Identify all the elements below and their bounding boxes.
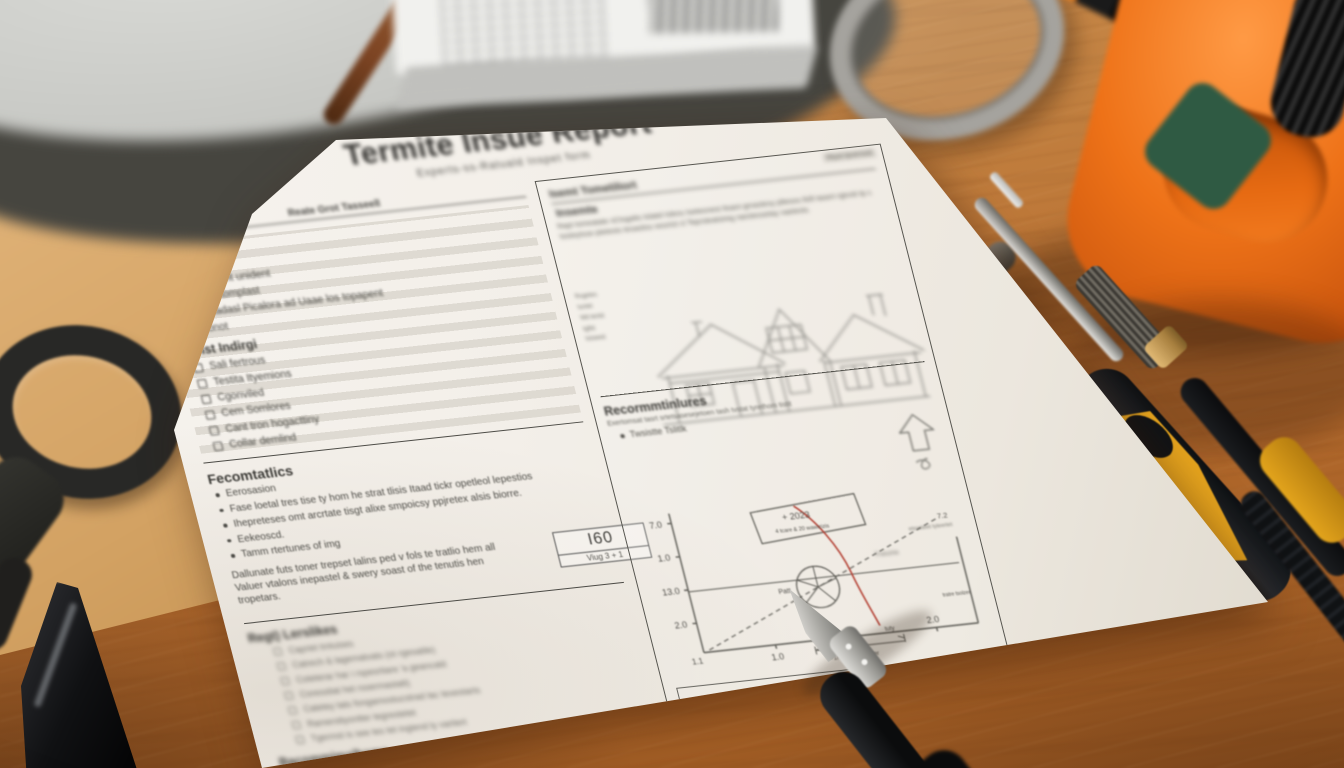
checkbox-icon <box>175 294 186 304</box>
checkbox-icon <box>197 378 208 388</box>
bullet-dot <box>231 554 235 558</box>
knife-collar-dot <box>844 642 852 650</box>
paper: Termite Insue Report Experts-ss-Ratuald … <box>0 0 1344 768</box>
y-tick: 2.0 <box>673 620 688 631</box>
checkbox-label: Sali fertrous <box>208 354 267 372</box>
checkbox-icon <box>205 410 216 420</box>
bullet-text: Eekeoscd. <box>236 529 286 546</box>
knife-collar-dot <box>860 658 868 666</box>
up-arrow-doodle <box>882 408 958 477</box>
x-tick: 1.0 <box>770 651 785 662</box>
checkbox-icon <box>183 325 194 335</box>
origin-label: 1.1 <box>691 657 705 667</box>
checkbox-icon <box>276 662 286 671</box>
inspection-chart: 7.0 1.0 13.0 2.0 1.1 1.0 + 2023 4 tcare … <box>629 475 999 685</box>
paper-sheet: Termite Insue Report Experts-ss-Ratuald … <box>0 0 1344 768</box>
desk-scene: Termite Insue Report Experts-ss-Ratuald … <box>0 0 1344 768</box>
checkbox-icon <box>171 279 182 289</box>
checkbox-icon <box>288 706 298 715</box>
checkbox-icon <box>193 363 204 373</box>
bullet-dot <box>227 539 231 543</box>
chart-box-sub: 4 tcare & 20 wawizizis <box>775 524 830 536</box>
bullet-dot <box>219 508 223 512</box>
checkbox-icon <box>295 736 305 745</box>
y-tick: 13.0 <box>661 586 681 598</box>
line-end-label: 7.2 <box>936 511 949 521</box>
checkbox-icon <box>179 310 190 320</box>
checkbox-icon <box>208 425 219 435</box>
checkbox-label: Honot <box>199 320 230 335</box>
right-note: tratre tsolzer <box>942 590 971 599</box>
bullet-dot <box>223 523 227 527</box>
checkbox-icon <box>284 691 294 700</box>
house-drawing-block: Rsgetes tuntel Wtl tentd tgftd tstoeed <box>562 211 923 391</box>
checkbox-icon <box>201 394 212 404</box>
bullet-dot <box>215 493 219 497</box>
checkbox-icon <box>273 647 283 656</box>
hub-label: Patt <box>778 588 792 596</box>
checkbox-icon <box>212 441 223 451</box>
y-tick: 1.0 <box>657 553 672 564</box>
bullet-text: Eerosasion <box>225 483 278 501</box>
chart-box-title: + 2023 <box>781 510 811 523</box>
report-form: Termite Insue Report Experts-ss-Ratuald … <box>130 124 1041 768</box>
bullet-dot <box>620 434 624 438</box>
inspection-chart-block: 7.0 1.0 13.0 2.0 1.1 1.0 + 2023 4 tcare … <box>629 475 997 684</box>
checkbox-label: Cgonviled <box>216 387 265 404</box>
checkbox-icon <box>291 721 301 730</box>
checkbox-label: Collar demlind <box>228 432 298 451</box>
checkbox-icon <box>280 677 290 686</box>
y-tick: 7.0 <box>648 520 663 531</box>
